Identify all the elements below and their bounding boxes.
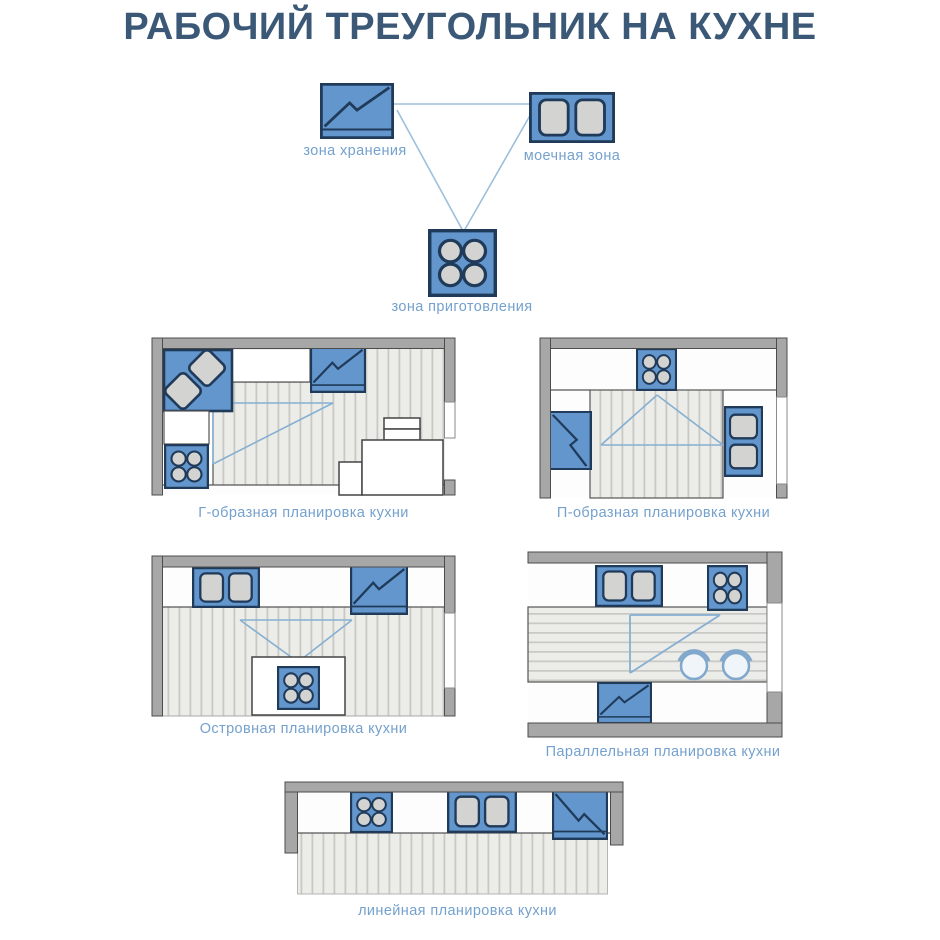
stove-icon [637, 349, 676, 390]
cabinet [164, 411, 209, 444]
stove-icon [278, 667, 319, 709]
fridge-icon [598, 683, 651, 723]
corner-sink-icon [163, 348, 232, 411]
sink-icon [530, 93, 613, 141]
window [777, 397, 788, 484]
diagram-canvas [0, 0, 940, 940]
sink-icon [725, 407, 762, 476]
window [767, 603, 782, 692]
fridge-icon [311, 347, 365, 392]
layout-label-l-shaped: Г-образная планировка кухни [152, 505, 455, 521]
layout-l-shaped [152, 338, 455, 495]
fridge-icon [321, 84, 392, 137]
floor [298, 833, 608, 894]
sink-icon [448, 791, 516, 832]
zone-label-washing: моечная зона [487, 148, 657, 164]
stove-icon [165, 445, 208, 488]
layout-linear [285, 782, 623, 894]
sink-icon [193, 568, 259, 607]
stove-icon [708, 566, 747, 610]
fridge-icon [549, 412, 591, 469]
window [445, 402, 456, 438]
work-triangle-diagram [321, 84, 613, 295]
zone-label-cooking: зона приготовления [377, 299, 547, 315]
infographic-page: РАБОЧИЙ ТРЕУГОЛЬНИК НА КУХНЕ зона хранен… [0, 0, 940, 940]
fridge-icon [553, 791, 607, 839]
sink-icon [596, 566, 662, 606]
island-counter [252, 657, 345, 715]
layout-parallel [528, 552, 782, 737]
fridge-icon [351, 566, 407, 614]
layout-label-u-shaped: П-образная планировка кухни [540, 505, 787, 521]
bar-stool [721, 651, 751, 679]
triangle-connector-lines [392, 104, 532, 231]
layout-u-shaped [540, 338, 787, 498]
layout-label-linear: линейная планировка кухни [285, 903, 630, 919]
bar-stool [679, 651, 709, 679]
stove-icon [351, 792, 392, 832]
layout-label-island: Островная планировка кухни [152, 721, 455, 737]
stove-icon [430, 231, 496, 296]
floor [590, 390, 723, 498]
layout-island [152, 556, 455, 716]
page-title: РАБОЧИЙ ТРЕУГОЛЬНИК НА КУХНЕ [0, 6, 940, 49]
layout-label-parallel: Параллельная планировка кухни [520, 744, 806, 760]
window [445, 613, 456, 688]
zone-label-storage: зона хранения [270, 143, 440, 159]
